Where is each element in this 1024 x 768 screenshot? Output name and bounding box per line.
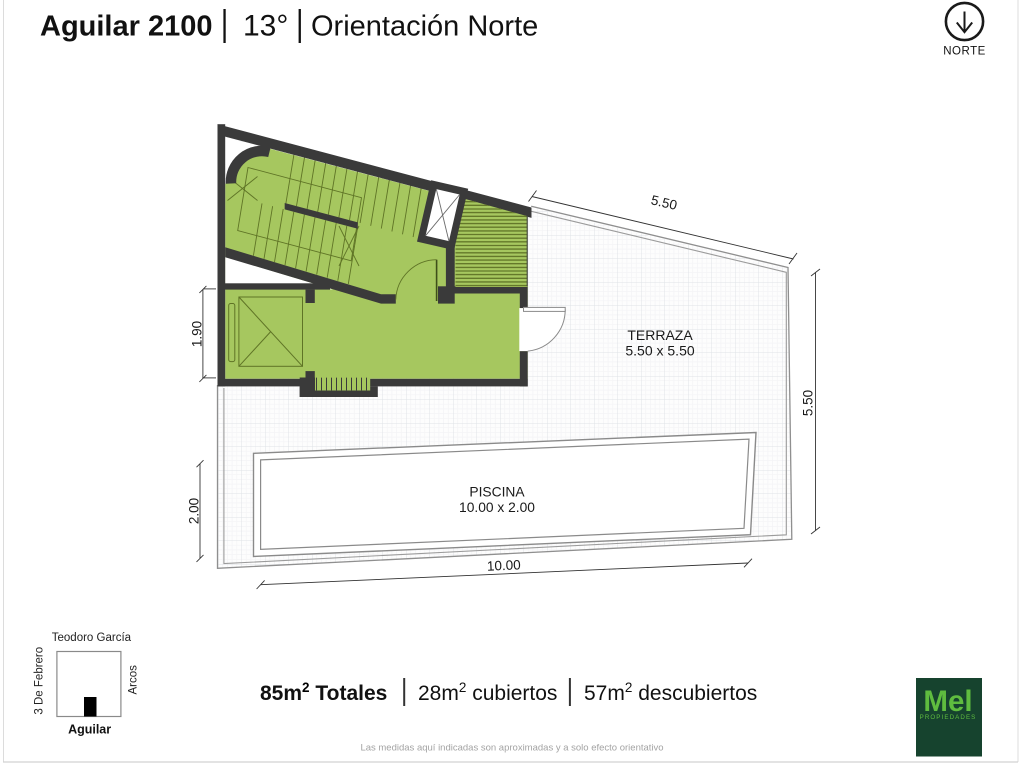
- svg-text:TERRAZA: TERRAZA: [627, 327, 693, 343]
- svg-text:13°: 13°: [243, 10, 288, 43]
- svg-text:85m2 Totales: 85m2 Totales: [260, 680, 387, 705]
- svg-text:Orientación Norte: Orientación Norte: [311, 11, 538, 43]
- svg-text:1.90: 1.90: [190, 321, 205, 347]
- svg-text:28m2 cubiertos: 28m2 cubiertos: [418, 680, 557, 705]
- svg-text:10.00 x 2.00: 10.00 x 2.00: [459, 500, 535, 515]
- svg-text:2.00: 2.00: [187, 498, 202, 524]
- svg-text:PISCINA: PISCINA: [469, 485, 525, 500]
- svg-text:PROPIEDADES: PROPIEDADES: [920, 714, 977, 721]
- svg-text:Arcos: Arcos: [128, 665, 140, 695]
- svg-text:57m2 descubiertos: 57m2 descubiertos: [584, 680, 757, 705]
- svg-text:Teodoro García: Teodoro García: [52, 632, 132, 644]
- svg-text:10.00: 10.00: [487, 557, 521, 574]
- svg-text:Aguilar: Aguilar: [68, 723, 111, 737]
- svg-text:5.50: 5.50: [801, 390, 816, 416]
- svg-text:Aguilar 2100: Aguilar 2100: [40, 11, 212, 43]
- svg-text:5.50 x 5.50: 5.50 x 5.50: [625, 343, 694, 359]
- svg-text:NORTE: NORTE: [943, 46, 986, 58]
- svg-text:Las medidas aquí indicadas son: Las medidas aquí indicadas son aproximad…: [360, 743, 663, 754]
- svg-text:3 De Febrero: 3 De Febrero: [33, 647, 45, 715]
